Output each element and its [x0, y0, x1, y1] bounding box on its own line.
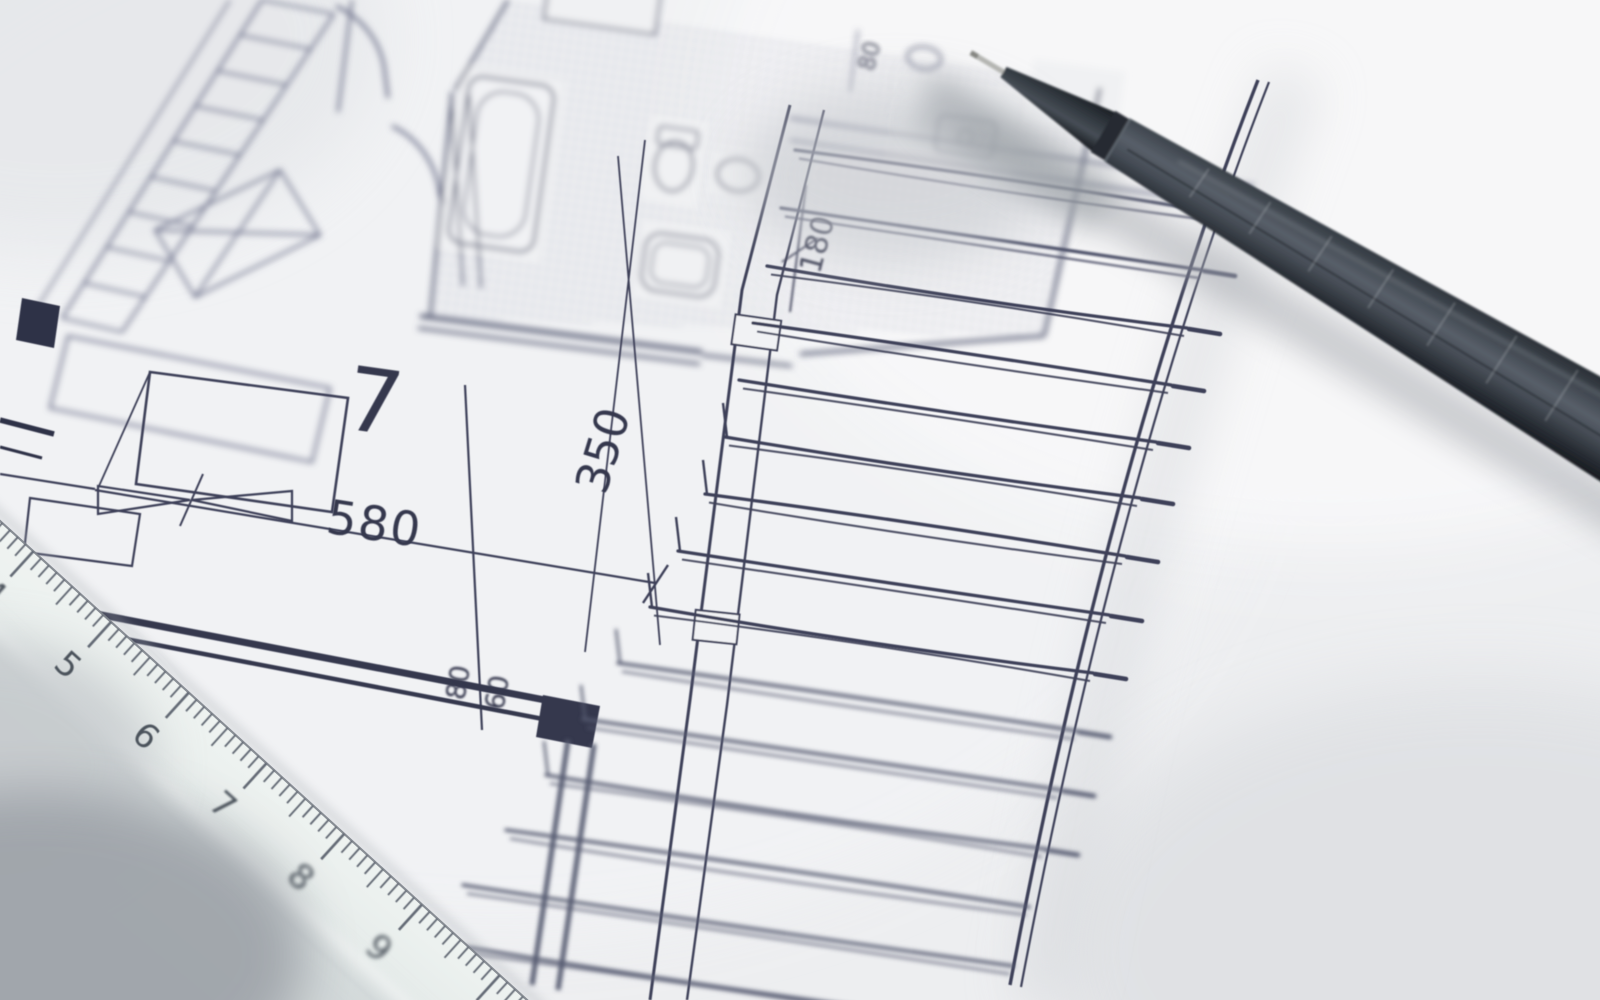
scene-floorplan-pen-ruler: 7 580 350 180 80 80 60 4 5 6 7 8 9 — [0, 0, 1600, 1000]
photo-architectural-plan: 7 580 350 180 80 80 60 4 5 6 7 8 9 — [0, 0, 1600, 1000]
dim-wall-a-label: 80 — [440, 663, 476, 702]
dim-wall-b-label: 60 — [479, 673, 515, 712]
